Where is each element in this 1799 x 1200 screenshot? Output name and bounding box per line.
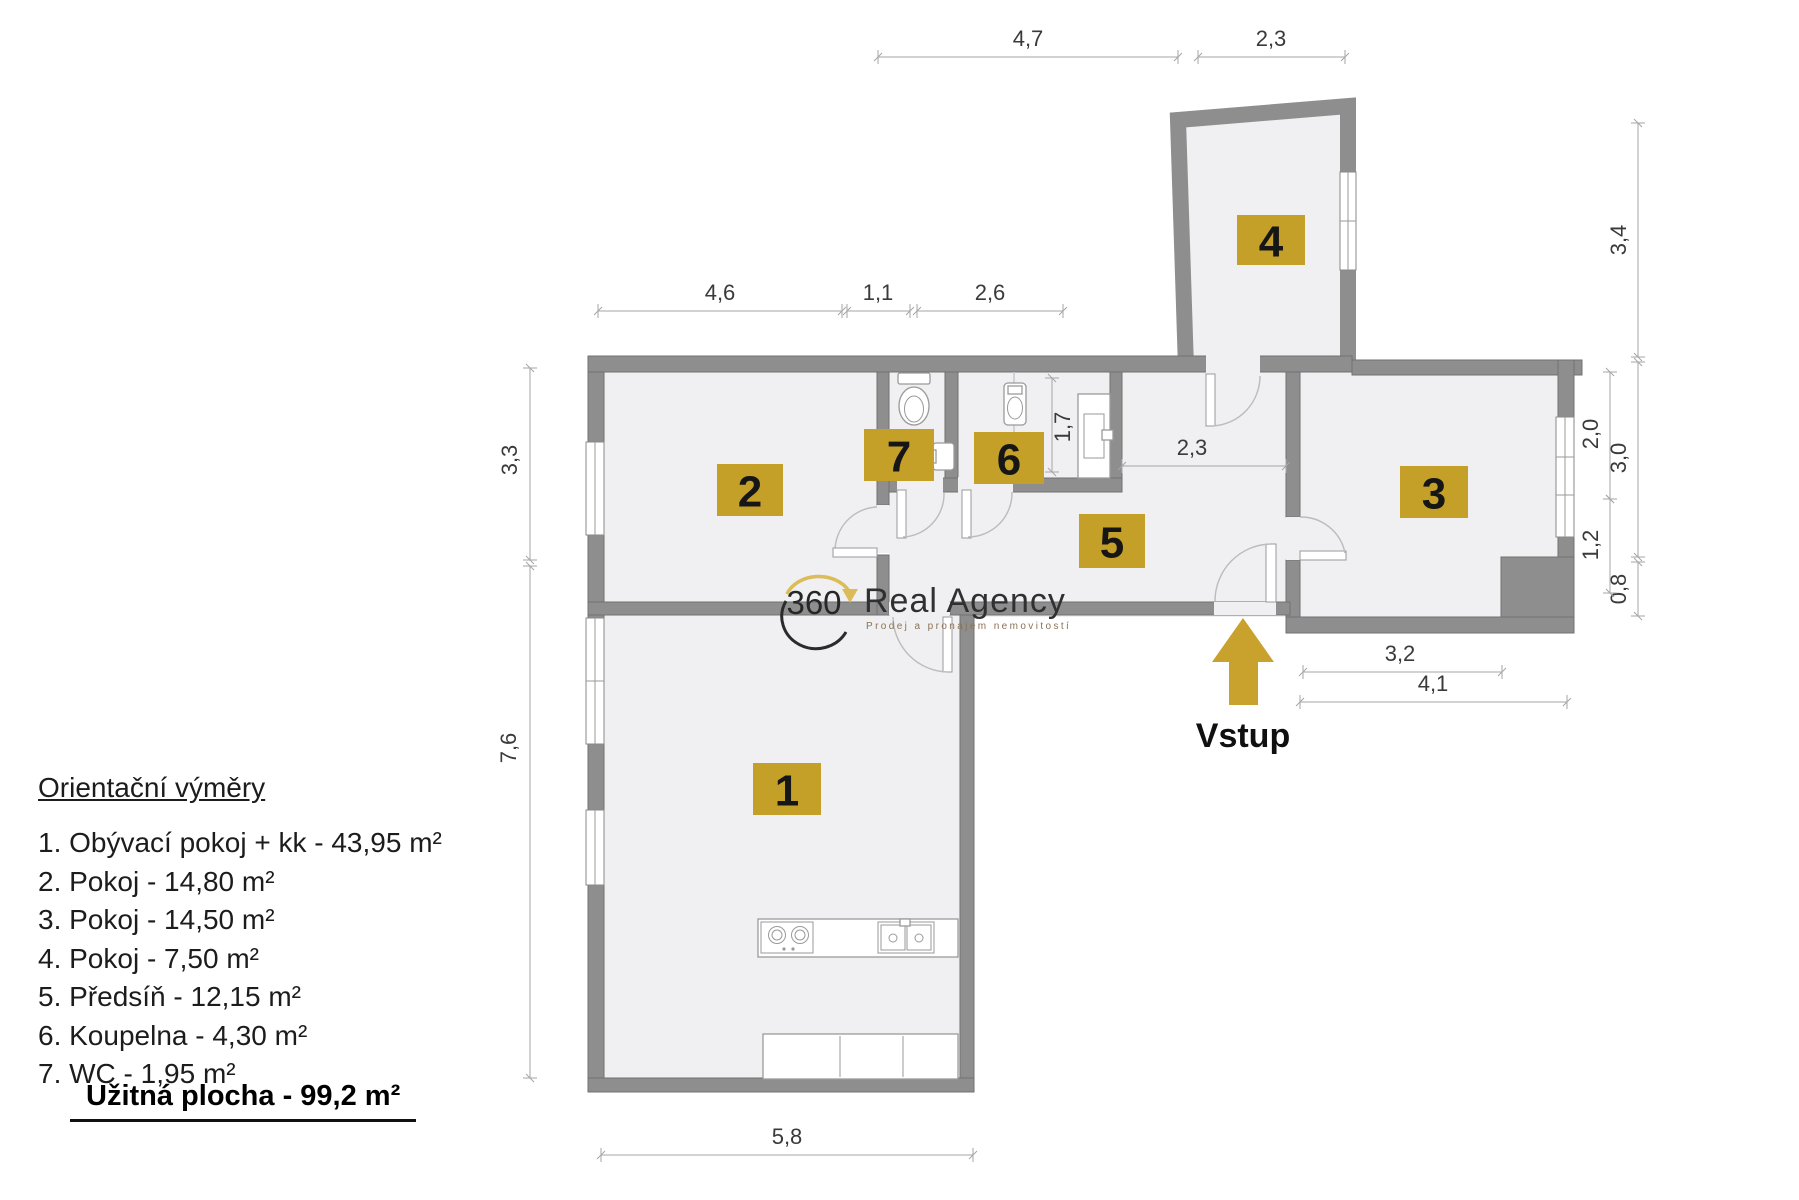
- legend-items: 1. Obývací pokoj + kk - 43,95 m² 2. Poko…: [38, 824, 442, 1094]
- legend-item: 2. Pokoj - 14,80 m²: [38, 863, 442, 902]
- dim-label: 4,7: [1013, 26, 1044, 51]
- entrance-marker: Vstup: [1196, 618, 1290, 755]
- wall-bath-right: [1110, 372, 1122, 478]
- dim-label: 3,2: [1385, 641, 1416, 666]
- legend: Orientační výměry 1. Obývací pokoj + kk …: [38, 772, 442, 1094]
- room-badge-6: 6: [974, 432, 1044, 485]
- room-badge-7: 7: [864, 429, 934, 482]
- legend-item: 5. Předsíň - 12,15 m²: [38, 978, 442, 1017]
- dim-label: 7,6: [496, 733, 521, 764]
- bath-vanity-icon: [1078, 394, 1113, 478]
- room-floors: [604, 106, 1574, 1078]
- wall-wc-bath-divider: [945, 372, 958, 492]
- opening-room4: [1206, 351, 1260, 376]
- room-badge-1: 1: [753, 763, 821, 816]
- room-badge-6-number: 6: [997, 436, 1021, 485]
- dim-label: 5,8: [772, 1124, 803, 1149]
- dim-label: 4,1: [1418, 671, 1449, 696]
- dim-label: 3,4: [1606, 225, 1631, 256]
- logo-brand: Real Agency: [864, 582, 1066, 620]
- legend-title: Orientační výměry: [38, 772, 442, 804]
- room-badge-2: 2: [717, 464, 783, 517]
- window-room1-left-lower: [586, 810, 604, 885]
- room-badge-5-number: 5: [1100, 519, 1124, 568]
- room-1-floor: [604, 615, 960, 1078]
- room-badge-5: 5: [1079, 514, 1145, 568]
- opening-room2: [877, 505, 889, 553]
- legend-item: 4. Pokoj - 7,50 m²: [38, 940, 442, 979]
- boiler-icon: [1004, 383, 1026, 425]
- wall-room3-bottom: [1286, 617, 1574, 633]
- room-badge-4-number: 4: [1259, 218, 1284, 267]
- legend-item: 1. Obývací pokoj + kk - 43,95 m²: [38, 824, 442, 863]
- logo-mark: 360: [786, 584, 841, 621]
- wall-room1-bottom: [588, 1078, 974, 1092]
- toilet-icon: [898, 373, 930, 425]
- entrance-label: Vstup: [1196, 717, 1290, 755]
- room-badge-7-number: 7: [887, 433, 911, 482]
- wall-notch-block: [1501, 557, 1574, 617]
- kitchen-island-icon: [763, 1034, 958, 1079]
- window-room2-left: [586, 442, 604, 535]
- room-badge-3: 3: [1400, 466, 1468, 519]
- dim-label: 1,1: [863, 280, 894, 305]
- dim-label: 1,7: [1050, 412, 1075, 443]
- floorplan-page: 1 2 3 4 5 6 7 4,7 2,3: [0, 0, 1799, 1200]
- room-badge-2-number: 2: [738, 468, 762, 517]
- entrance-arrow-icon: [1212, 618, 1274, 705]
- legend-item: 3. Pokoj - 14,50 m²: [38, 901, 442, 940]
- kitchen-counter-icon: [758, 919, 958, 957]
- dim-label: 2,0: [1578, 419, 1603, 450]
- window-room3-right: [1556, 417, 1574, 537]
- opening-room3: [1286, 517, 1300, 560]
- room-badge-4: 4: [1237, 215, 1305, 267]
- window-room1-left-upper: [586, 618, 604, 744]
- wall-room3-left-upper: [1286, 372, 1300, 517]
- dim-label: 2,3: [1256, 26, 1287, 51]
- wall-room2-bottom: [588, 602, 889, 615]
- legend-item: 6. Koupelna - 4,30 m²: [38, 1017, 442, 1056]
- logo-tagline: Prodej a pronájem nemovitostí: [866, 621, 1071, 632]
- opening-entrance: [1214, 602, 1276, 615]
- wall-top-right: [1352, 360, 1582, 375]
- dim-label: 2,3: [1177, 435, 1208, 460]
- dim-label: 2,6: [975, 280, 1006, 305]
- wall-room1-right: [960, 615, 974, 1078]
- window-room4-right: [1340, 172, 1356, 270]
- dim-label: 4,6: [705, 280, 736, 305]
- dim-label: 3,3: [497, 445, 522, 476]
- room-badge-3-number: 3: [1422, 470, 1446, 519]
- legend-total: Užitná plocha - 99,2 m²: [70, 1080, 416, 1122]
- room-badge-1-number: 1: [775, 767, 799, 816]
- dim-label: 1,2: [1578, 530, 1603, 561]
